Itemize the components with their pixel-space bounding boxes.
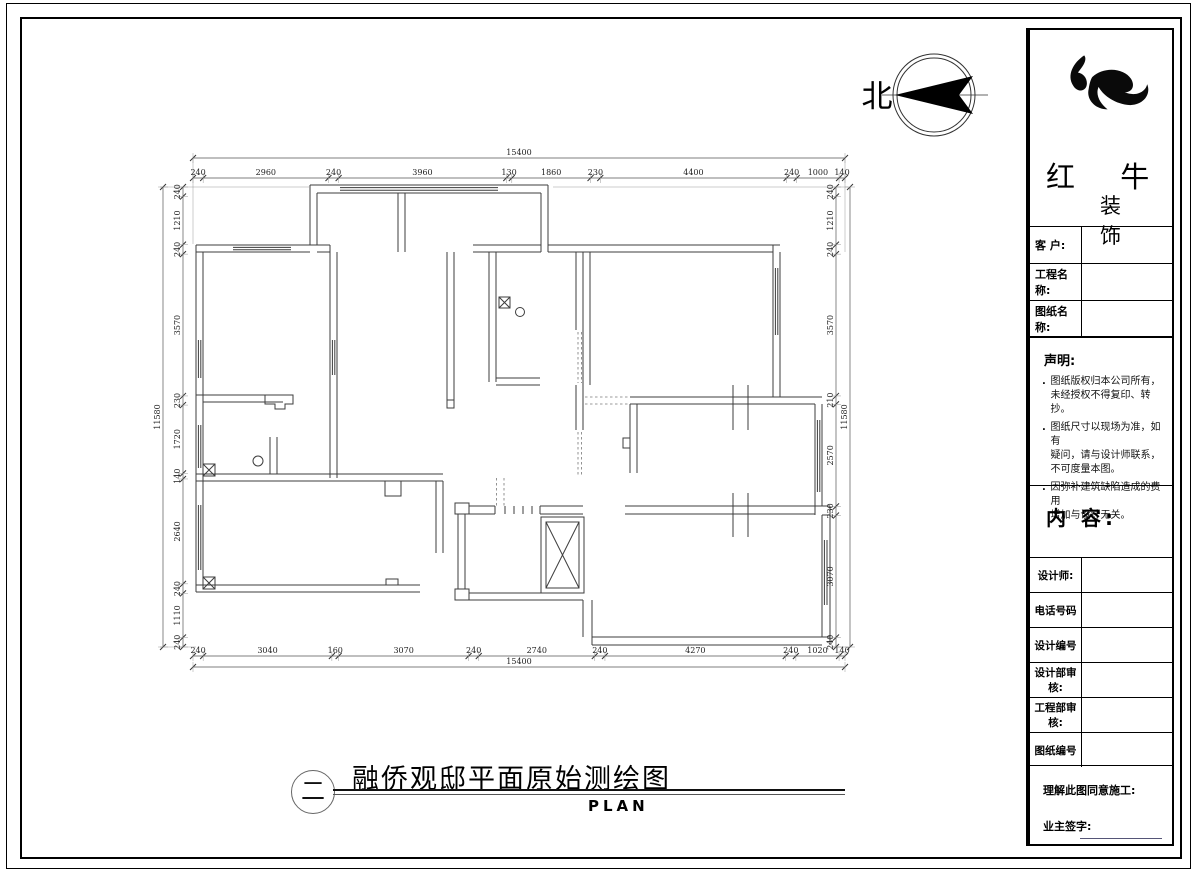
title-block: 红 牛 装 饰 客 户: 工程名称: 图纸名称: 声明: .图纸版权归本公司所有… (1026, 28, 1174, 846)
dimtext: 4400 (683, 168, 703, 177)
plumbing-fixtures (253, 297, 525, 466)
field-row-client: 客 户: (1030, 226, 1172, 263)
owner-sign-label: 业主签字: (1043, 818, 1172, 834)
dimtext: 240 (592, 646, 607, 655)
row-value (1082, 558, 1172, 592)
dimtext: 240 (190, 646, 205, 655)
detail-index-bubble: 二 (291, 770, 335, 814)
dimtext: 15400 (506, 148, 531, 157)
north-compass: 北 (862, 54, 989, 136)
dimtext: 3070 (393, 646, 413, 655)
dimtext: 3570 (173, 315, 182, 335)
dimtext: 1210 (173, 210, 182, 230)
dimtext: 3070 (826, 566, 835, 586)
dimtext: 1720 (173, 429, 182, 449)
row-value (1082, 698, 1172, 732)
dimtext: 2640 (173, 521, 182, 541)
dimtext: 240 (190, 168, 205, 177)
dimtext: 240 (173, 581, 182, 596)
row-design-no: 设计编号 (1030, 627, 1172, 662)
field-row-sheet: 图纸名称: (1030, 300, 1172, 337)
field-label: 图纸名称: (1030, 301, 1082, 336)
dimtext: 230 (588, 168, 603, 177)
approval-rows: 设计师: 电话号码 设计编号 设计部审核: 工程部审核: 图纸编号 (1030, 557, 1172, 767)
dimtext: 130 (501, 168, 516, 177)
field-value (1082, 227, 1172, 263)
content-label: 内 容: (1046, 502, 1172, 531)
field-value (1082, 301, 1172, 336)
dimtext: 1110 (173, 605, 182, 625)
title-rule (333, 789, 845, 791)
field-label: 工程名称: (1030, 264, 1082, 300)
drawing-sheet: 2402960240396013018602304400240100014015… (0, 0, 1200, 875)
dimtext: 1020 (807, 646, 827, 655)
title-rule-thin (333, 794, 845, 795)
statement-heading: 声明: (1044, 350, 1172, 369)
column-marker (203, 464, 215, 589)
dimtext: 230 (826, 503, 835, 518)
dimtext: 2960 (256, 168, 276, 177)
dimtext: 240 (173, 184, 182, 199)
row-engineering-audit: 工程部审核: (1030, 697, 1172, 732)
dimtext: 3040 (257, 646, 277, 655)
dimtext: 15400 (506, 657, 531, 666)
signature-section: 理解此图同意施工: 业主签字: (1030, 765, 1172, 848)
statement-item: .图纸尺寸以现场为准，如有 疑问，请与设计师联系， 不可度量本图。 (1042, 421, 1164, 477)
dimtext: 240 (326, 168, 341, 177)
dimtext: 2740 (527, 646, 547, 655)
signature-line (1080, 838, 1162, 839)
dimtext: 240 (826, 242, 835, 257)
row-label: 图纸编号 (1030, 733, 1082, 767)
elevator-shaft (541, 517, 584, 593)
dimtext: 140 (834, 646, 849, 655)
dimtext: 2570 (826, 445, 835, 465)
dimtext: 240 (783, 646, 798, 655)
agree-label: 理解此图同意施工: (1043, 782, 1172, 798)
row-value (1082, 663, 1172, 697)
dimtext: 230 (173, 393, 182, 408)
row-label: 电话号码 (1030, 593, 1082, 627)
dimtext: 3570 (826, 315, 835, 335)
plan-walls (160, 158, 848, 647)
dimtext: 240 (784, 168, 799, 177)
dimtext: 240 (173, 635, 182, 650)
dimtext: 240 (466, 646, 481, 655)
row-value (1082, 628, 1172, 662)
row-label: 设计部审核: (1030, 663, 1082, 697)
field-row-project: 工程名称: (1030, 263, 1172, 300)
content-section: 内 容: (1030, 485, 1172, 557)
dimtext: 3960 (412, 168, 432, 177)
dimtext: 160 (328, 646, 343, 655)
statement-section: 声明: .图纸版权归本公司所有， 未经授权不得复印、转抄。.图纸尺寸以现场为准，… (1030, 337, 1172, 485)
dimtext: 240 (826, 184, 835, 199)
row-value (1082, 593, 1172, 627)
row-value (1082, 733, 1172, 767)
row-design-audit: 设计部审核: (1030, 662, 1172, 697)
dimtext: 240 (173, 242, 182, 257)
dimtext: 140 (173, 469, 182, 484)
dimtext: 140 (834, 168, 849, 177)
floor-plan-canvas: 2402960240396013018602304400240100014015… (0, 0, 1200, 875)
dimtext: 4270 (685, 646, 705, 655)
dimtext: 11580 (153, 404, 162, 429)
dimtext: 11580 (840, 404, 849, 429)
dimtext: 1210 (826, 210, 835, 230)
row-phone: 电话号码 (1030, 592, 1172, 627)
row-label: 设计编号 (1030, 628, 1082, 662)
dimtext: 1000 (808, 168, 828, 177)
row-label: 设计师: (1030, 558, 1082, 592)
plan-subtitle: PLAN (588, 797, 649, 815)
dimtext: 1860 (541, 168, 561, 177)
brand-logo-icon (1050, 40, 1158, 150)
north-label: 北 (862, 79, 893, 115)
row-sheet-no: 图纸编号 (1030, 732, 1172, 767)
statement-item: .图纸版权归本公司所有， 未经授权不得复印、转抄。 (1042, 375, 1164, 417)
field-value (1082, 264, 1172, 300)
dimtext: 210 (826, 392, 835, 407)
row-designer: 设计师: (1030, 557, 1172, 592)
field-label: 客 户: (1030, 227, 1082, 263)
row-label: 工程部审核: (1030, 698, 1082, 732)
dimtext: 240 (826, 635, 835, 650)
info-fields: 客 户: 工程名称: 图纸名称: (1030, 226, 1172, 337)
